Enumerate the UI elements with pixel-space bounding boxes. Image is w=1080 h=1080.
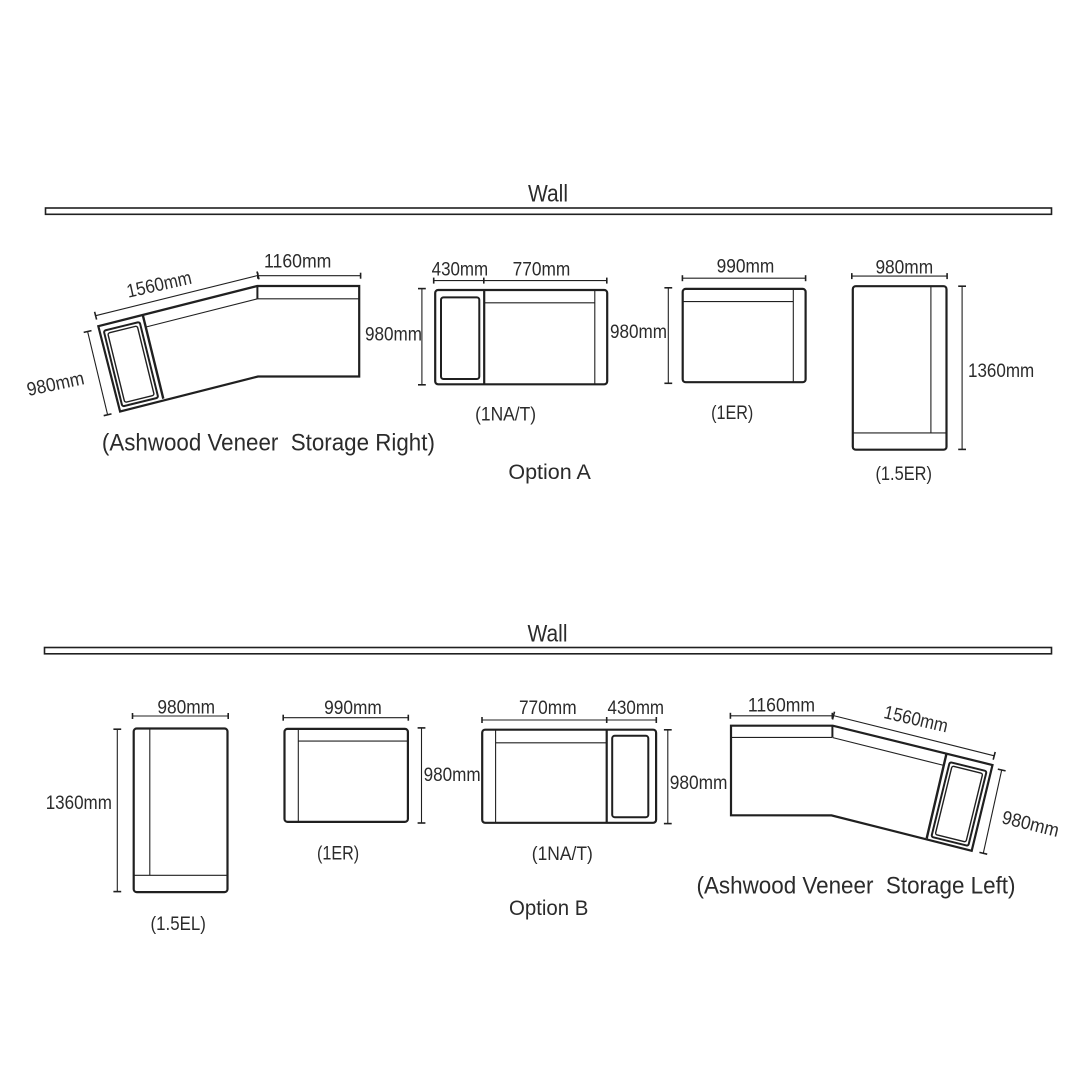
svg-text:990mm: 990mm xyxy=(717,256,775,277)
svg-text:(1.5ER): (1.5ER) xyxy=(875,464,932,485)
svg-text:Option A: Option A xyxy=(508,461,591,484)
svg-text:980mm: 980mm xyxy=(610,322,667,343)
svg-text:980mm: 980mm xyxy=(875,258,933,279)
svg-text:1560mm: 1560mm xyxy=(882,702,950,737)
svg-text:1160mm: 1160mm xyxy=(748,696,815,717)
svg-text:980mm: 980mm xyxy=(365,325,422,346)
svg-text:770mm: 770mm xyxy=(519,698,577,719)
svg-text:770mm: 770mm xyxy=(513,259,571,280)
svg-text:(1NA/T): (1NA/T) xyxy=(475,404,536,425)
svg-text:Wall: Wall xyxy=(528,620,568,647)
svg-text:430mm: 430mm xyxy=(608,698,665,719)
svg-text:(1NA/T): (1NA/T) xyxy=(532,844,593,865)
svg-text:430mm: 430mm xyxy=(432,259,489,280)
svg-text:(1.5EL): (1.5EL) xyxy=(151,914,206,935)
svg-text:(1ER): (1ER) xyxy=(711,403,753,424)
svg-text:1360mm: 1360mm xyxy=(968,361,1034,382)
svg-text:(Ashwood Veneer Storage Right: (Ashwood Veneer Storage Right) xyxy=(102,429,435,456)
svg-text:Wall: Wall xyxy=(528,181,568,208)
svg-text:980mm: 980mm xyxy=(670,773,728,794)
svg-text:980mm: 980mm xyxy=(424,765,481,786)
svg-text:(1ER): (1ER) xyxy=(317,844,359,865)
svg-text:Option B: Option B xyxy=(509,897,589,920)
svg-text:1560mm: 1560mm xyxy=(125,268,194,303)
svg-text:(Ashwood Veneer Storage Left): (Ashwood Veneer Storage Left) xyxy=(697,873,1016,900)
svg-text:980mm: 980mm xyxy=(25,368,86,401)
svg-text:980mm: 980mm xyxy=(157,697,215,718)
svg-text:1360mm: 1360mm xyxy=(46,793,112,814)
svg-text:990mm: 990mm xyxy=(324,698,382,719)
svg-text:1160mm: 1160mm xyxy=(264,252,331,273)
svg-text:980mm: 980mm xyxy=(1000,807,1061,841)
